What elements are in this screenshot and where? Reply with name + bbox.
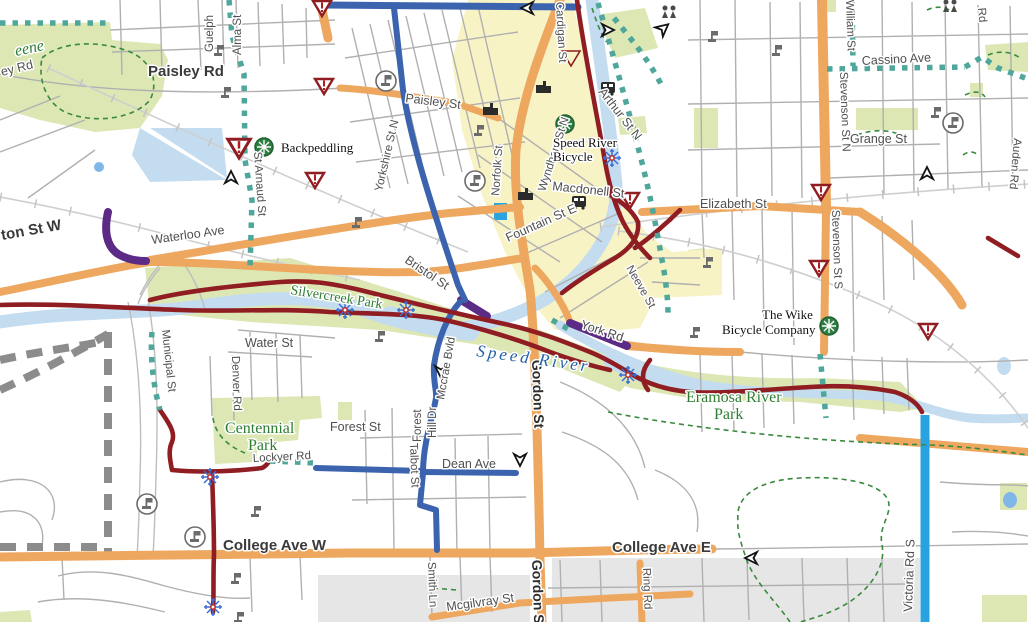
park-label-eramosa-2: Park: [714, 406, 743, 423]
city-bike-map[interactable]: Paisley Rd ey Rd Guelph Alma St Paisley …: [0, 0, 1028, 622]
flag-icon: [708, 31, 718, 42]
warning-triangle-icon: [919, 324, 937, 339]
direction-arrow-icon: [655, 20, 672, 37]
park-label-centennial-1: Centennial: [225, 420, 295, 437]
street-label-stevenson-st-s: Stevenson St S: [829, 210, 844, 290]
flag-icon: [931, 107, 941, 118]
street-label-water-st: Water St: [245, 336, 294, 350]
poi-label-backpeddling: Backpeddling: [281, 140, 354, 155]
street-label-cassino-ave: Cassino Ave: [861, 50, 931, 68]
street-label-municipal-st: Municipal St: [159, 329, 178, 393]
flag-icon: [251, 506, 261, 517]
street-label-st-arnaud-st: St Arnaud St: [251, 151, 268, 217]
poi-label-wike-1: The Wike: [762, 307, 813, 322]
circled-flag-icon: [185, 527, 205, 547]
street-label-guelph: Guelph: [204, 15, 216, 52]
bike-shop-wheel-icon: [820, 317, 838, 335]
rail-corridor-dashed: [0, 332, 108, 552]
street-label-college-ave-e: College Ave E: [612, 539, 711, 556]
flag-icon: [234, 612, 244, 622]
warning-triangle-icon: [315, 79, 333, 94]
poi-label-wike-2: Bicycle Company: [722, 322, 816, 337]
poi-label-speed-river-bicycle-1: Speed River: [553, 135, 618, 150]
circled-flag-icon: [943, 113, 963, 133]
street-label-paisley-rd: Paisley Rd: [148, 63, 224, 80]
street-label-forest-hill-2: Hill Dr: [427, 407, 439, 438]
park-label-eramosa-1: Eramosa River: [686, 389, 782, 406]
direction-arrow-icon: [514, 454, 526, 466]
street-label-gordon-st-lower: Gordon St: [529, 560, 547, 622]
street-label-elizabeth-st: Elizabeth St: [700, 197, 767, 211]
flag-icon: [375, 331, 385, 342]
street-label-forest-hill-1: Forest: [412, 409, 424, 442]
people-icon: [662, 6, 676, 19]
direction-arrow-icon: [921, 167, 933, 179]
circled-flag-icon: [137, 494, 157, 514]
street-label-rd: Rd: [975, 7, 988, 23]
street-label-ring-rd: Ring Rd: [640, 568, 653, 610]
street-label-denver-rd: Denver Rd: [229, 356, 243, 411]
street-label-yorkshire-st-n: Yorkshire St N: [373, 119, 401, 193]
park-label-centennial-2: Park: [248, 437, 277, 454]
street-label-college-ave-w: College Ave W: [223, 537, 327, 554]
flag-icon: [690, 327, 700, 338]
street-label-forest-st: Forest St: [330, 420, 381, 434]
street-label-gordon-st-upper: Gordon St: [529, 360, 547, 429]
snowflake-icon: [204, 598, 222, 616]
street-label-waterloo-ave: Waterloo Ave: [150, 223, 225, 247]
map-canvas[interactable]: Paisley Rd ey Rd Guelph Alma St Paisley …: [0, 0, 1028, 622]
street-label-wellington-st-w: ton St W: [0, 216, 63, 243]
poi-label-speed-river-bicycle-2: Bicycle: [553, 149, 593, 164]
circled-flag-icon: [465, 171, 485, 191]
street-label-dean-ave: Dean Ave: [442, 457, 496, 471]
flag-icon: [772, 45, 782, 56]
street-label-auden-rd: Auden Rd: [1007, 138, 1023, 190]
street-label-smith-ln: Smith Ln: [425, 562, 439, 608]
street-label-paisley-st: Paisley St: [405, 91, 462, 112]
street-label-grange-st: Grange St: [850, 132, 908, 146]
flag-icon: [231, 573, 241, 584]
street-label-talbot-st: Talbot St: [407, 443, 421, 489]
street-label-alma-st: Alma St: [232, 14, 244, 55]
circled-flag-icon: [376, 71, 396, 91]
street-label-victoria-rd-s: Victoria Rd S: [901, 539, 918, 612]
street-label-william-st: William St: [843, 0, 857, 52]
